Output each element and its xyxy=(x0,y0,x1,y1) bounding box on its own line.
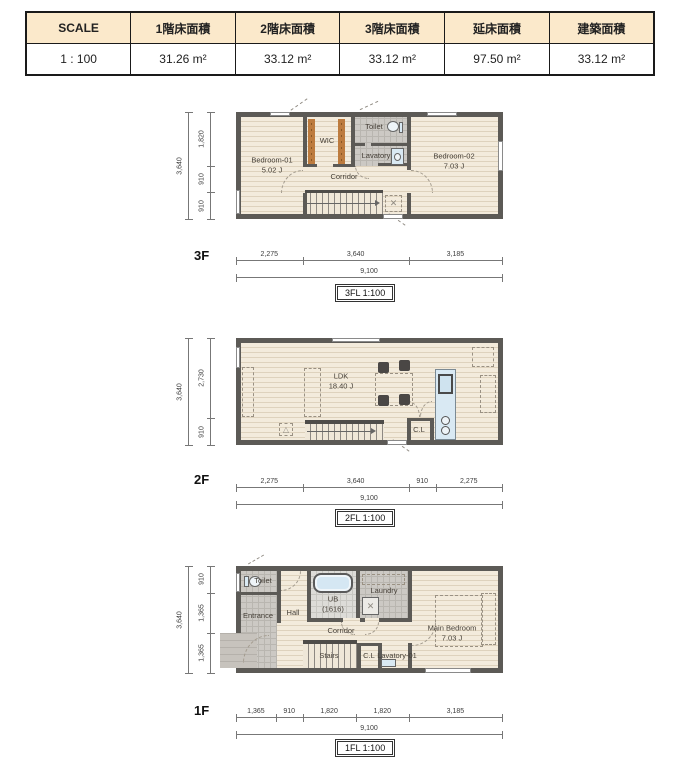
plan-caption-1f: 1FL 1:100 xyxy=(337,741,393,755)
interior-wall xyxy=(371,143,407,146)
interior-wall xyxy=(408,571,412,619)
dim-label: 910 xyxy=(199,200,206,212)
window xyxy=(236,190,240,214)
toilet-tank-icon xyxy=(399,122,403,133)
vent-line xyxy=(291,98,308,110)
dim-label: 910 xyxy=(416,478,428,485)
plan-caption-3f: 3FL 1:100 xyxy=(337,286,393,300)
window xyxy=(270,112,290,116)
room-label-stairs: Stairs xyxy=(319,651,338,661)
dim-label: 9,100 xyxy=(360,495,378,502)
floor-label-1f: 1F xyxy=(194,703,209,718)
window xyxy=(383,214,403,219)
stair-handrail xyxy=(305,190,383,193)
stove-burners-icon xyxy=(438,415,453,437)
window xyxy=(236,347,240,368)
bathtub-icon xyxy=(313,573,353,593)
toilet-tank-icon xyxy=(244,576,249,587)
furniture-outline xyxy=(480,375,496,413)
door-swing-arc xyxy=(411,170,433,193)
plan-2f: LDK18.40 J C.L xyxy=(236,338,503,445)
value-3f-area: 33.12 m² xyxy=(340,44,445,76)
header-building-area: 建築面積 xyxy=(549,12,654,44)
dim-line-horizontal-total: 9,100 xyxy=(236,504,502,505)
interior-wall xyxy=(407,418,411,440)
dim-label: 3,640 xyxy=(177,383,184,401)
plan-caption-2f: 2FL 1:100 xyxy=(337,511,393,525)
dim-line-vertical-segments: 910 1,365 1,365 xyxy=(210,566,211,673)
dim-label: 3,640 xyxy=(347,478,365,485)
vent-line xyxy=(360,101,379,110)
dim-label: 910 xyxy=(199,426,206,438)
room-label-corridor: Corridor xyxy=(327,626,354,636)
interior-wall xyxy=(303,117,307,167)
floor-symbol xyxy=(279,423,293,436)
door-swing-arc xyxy=(365,622,379,635)
dim-line-horizontal-segments: 2,275 3,640 3,185 xyxy=(236,260,502,261)
furniture-outline xyxy=(304,368,321,417)
dim-label: 910 xyxy=(199,574,206,586)
dim-line-horizontal-segments: 1,365 910 1,820 1,820 3,185 xyxy=(236,717,502,718)
stair-direction-arrow-icon xyxy=(375,200,380,206)
dim-label: 3,185 xyxy=(447,251,465,258)
room-label-cl: C.L xyxy=(413,425,425,435)
room-label-wic: WIC xyxy=(320,136,335,146)
header-scale: SCALE xyxy=(26,12,131,44)
dim-label: 2,275 xyxy=(260,478,278,485)
dim-line-vertical-total: 3,640 xyxy=(188,566,189,673)
lavatory-sink-icon xyxy=(391,148,404,165)
room-label-corridor: Corridor xyxy=(330,172,357,182)
room-label-entrance: Entrance xyxy=(243,611,273,621)
interior-wall xyxy=(333,164,355,167)
interior-wall xyxy=(407,193,411,214)
floor-plan-sheet: { "title_table": { "headers": ["SCALE", … xyxy=(0,0,679,771)
interior-wall xyxy=(277,595,281,623)
interior-wall xyxy=(356,571,360,618)
dim-line-vertical-segments: 2,730 910 xyxy=(210,338,211,445)
closet-rod xyxy=(338,119,345,164)
interior-wall xyxy=(407,117,411,170)
chair-icon xyxy=(378,395,389,406)
value-building-area: 33.12 m² xyxy=(549,44,654,76)
interior-wall xyxy=(357,643,361,668)
furniture-outline xyxy=(481,593,496,645)
dim-line-vertical-total: 3,640 xyxy=(188,338,189,445)
dim-label: 3,185 xyxy=(447,708,465,715)
value-total-area: 97.50 m² xyxy=(445,44,550,76)
room-label-laundry: Laundry xyxy=(370,586,397,596)
interior-wall xyxy=(430,418,434,440)
door-swing-arc xyxy=(420,401,432,417)
window xyxy=(498,141,503,171)
dim-label: 9,100 xyxy=(360,268,378,275)
interior-wall xyxy=(241,592,281,595)
room-label-toilet: Toilet xyxy=(365,122,383,132)
dim-label: 3,640 xyxy=(177,611,184,629)
window xyxy=(387,440,407,445)
window xyxy=(427,112,457,116)
room-label-toilet: Toilet xyxy=(254,576,272,586)
room-label-cl: C.L xyxy=(363,651,375,661)
chair-icon xyxy=(378,362,389,373)
interior-wall xyxy=(307,618,343,622)
chair-icon xyxy=(399,360,410,371)
dim-line-horizontal-segments: 2,275 3,640 910 2,275 xyxy=(236,487,502,488)
value-1f-area: 31.26 m² xyxy=(131,44,236,76)
stair-handrail xyxy=(303,640,357,644)
dim-label: 9,100 xyxy=(360,725,378,732)
window xyxy=(332,338,380,342)
room-label-bedroom02: Bedroom-027.03 J xyxy=(433,151,474,171)
room-label-main-bedroom: Main Bedroom7.03 J xyxy=(428,623,477,643)
dim-label: 1,365 xyxy=(247,708,265,715)
floor-label-2f: 2F xyxy=(194,472,209,487)
table-value-row: 1 : 100 31.26 m² 33.12 m² 33.12 m² 97.50… xyxy=(26,44,654,76)
room-label-bedroom01: Bedroom-015.02 J xyxy=(251,155,292,175)
interior-wall xyxy=(355,143,365,146)
table-header-row: SCALE 1階床面積 2階床面積 3階床面積 延床面積 建築面積 xyxy=(26,12,654,44)
interior-wall xyxy=(303,164,317,167)
plan-3f: Bedroom-015.02 J WIC Toilet Lavatory Cor… xyxy=(236,112,503,219)
closet-rod xyxy=(308,119,315,164)
dim-label: 1,365 xyxy=(199,644,206,662)
dim-label: 1,820 xyxy=(374,708,392,715)
dim-label: 1,365 xyxy=(199,604,206,622)
header-3f-area: 3階床面積 xyxy=(340,12,445,44)
dim-label: 1,820 xyxy=(199,130,206,148)
dim-label: 910 xyxy=(283,708,295,715)
dim-line-horizontal-total: 9,100 xyxy=(236,734,502,735)
window xyxy=(236,573,240,592)
plan-1f: Toilet Entrance Hall UB(1616) Laundry Co… xyxy=(236,566,503,673)
dim-label: 3,640 xyxy=(347,251,365,258)
room-label-lavatory01: Lavatory-01 xyxy=(377,651,417,661)
room-label-hall: Hall xyxy=(287,608,300,618)
dim-label: 2,275 xyxy=(260,251,278,258)
room-label-ub: UB(1616) xyxy=(322,594,344,614)
stair-direction-line xyxy=(307,431,371,432)
dim-line-vertical-segments: 1,820 910 910 xyxy=(210,112,211,219)
header-1f-area: 1階床面積 xyxy=(131,12,236,44)
room-label-lavatory: Lavatory xyxy=(362,151,391,161)
dim-line-vertical-total: 3,640 xyxy=(188,112,189,219)
dim-line-horizontal-total: 9,100 xyxy=(236,277,502,278)
vent-line xyxy=(248,555,264,565)
furniture-outline xyxy=(472,347,494,367)
stair-handrail xyxy=(305,420,384,424)
room-label-ldk: LDK18.40 J xyxy=(329,371,354,391)
header-2f-area: 2階床面積 xyxy=(235,12,340,44)
interior-wall xyxy=(407,418,434,421)
stair-void-x-icon xyxy=(385,195,402,212)
dim-label: 2,275 xyxy=(460,478,478,485)
dim-label: 910 xyxy=(199,173,206,185)
kitchen-sink-icon xyxy=(438,374,453,394)
dim-label: 3,640 xyxy=(177,157,184,175)
header-total-area: 延床面積 xyxy=(445,12,550,44)
value-2f-area: 33.12 m² xyxy=(235,44,340,76)
stair-direction-line xyxy=(307,203,375,204)
window xyxy=(425,668,471,673)
dim-label: 1,820 xyxy=(320,708,338,715)
interior-wall xyxy=(357,643,382,646)
washing-machine-icon xyxy=(362,597,379,615)
value-scale: 1 : 100 xyxy=(26,44,131,76)
door-swing-arc xyxy=(281,571,301,591)
shelf-outline xyxy=(362,574,405,585)
interior-wall xyxy=(351,117,355,167)
toilet-bowl-icon xyxy=(387,121,399,132)
furniture-outline xyxy=(242,367,254,417)
floor-label-3f: 3F xyxy=(194,248,209,263)
dim-label: 2,730 xyxy=(199,369,206,387)
chair-icon xyxy=(399,394,410,405)
stair-direction-arrow-icon xyxy=(371,428,376,434)
area-summary-table: SCALE 1階床面積 2階床面積 3階床面積 延床面積 建築面積 1 : 10… xyxy=(25,11,655,76)
interior-wall xyxy=(307,571,311,622)
